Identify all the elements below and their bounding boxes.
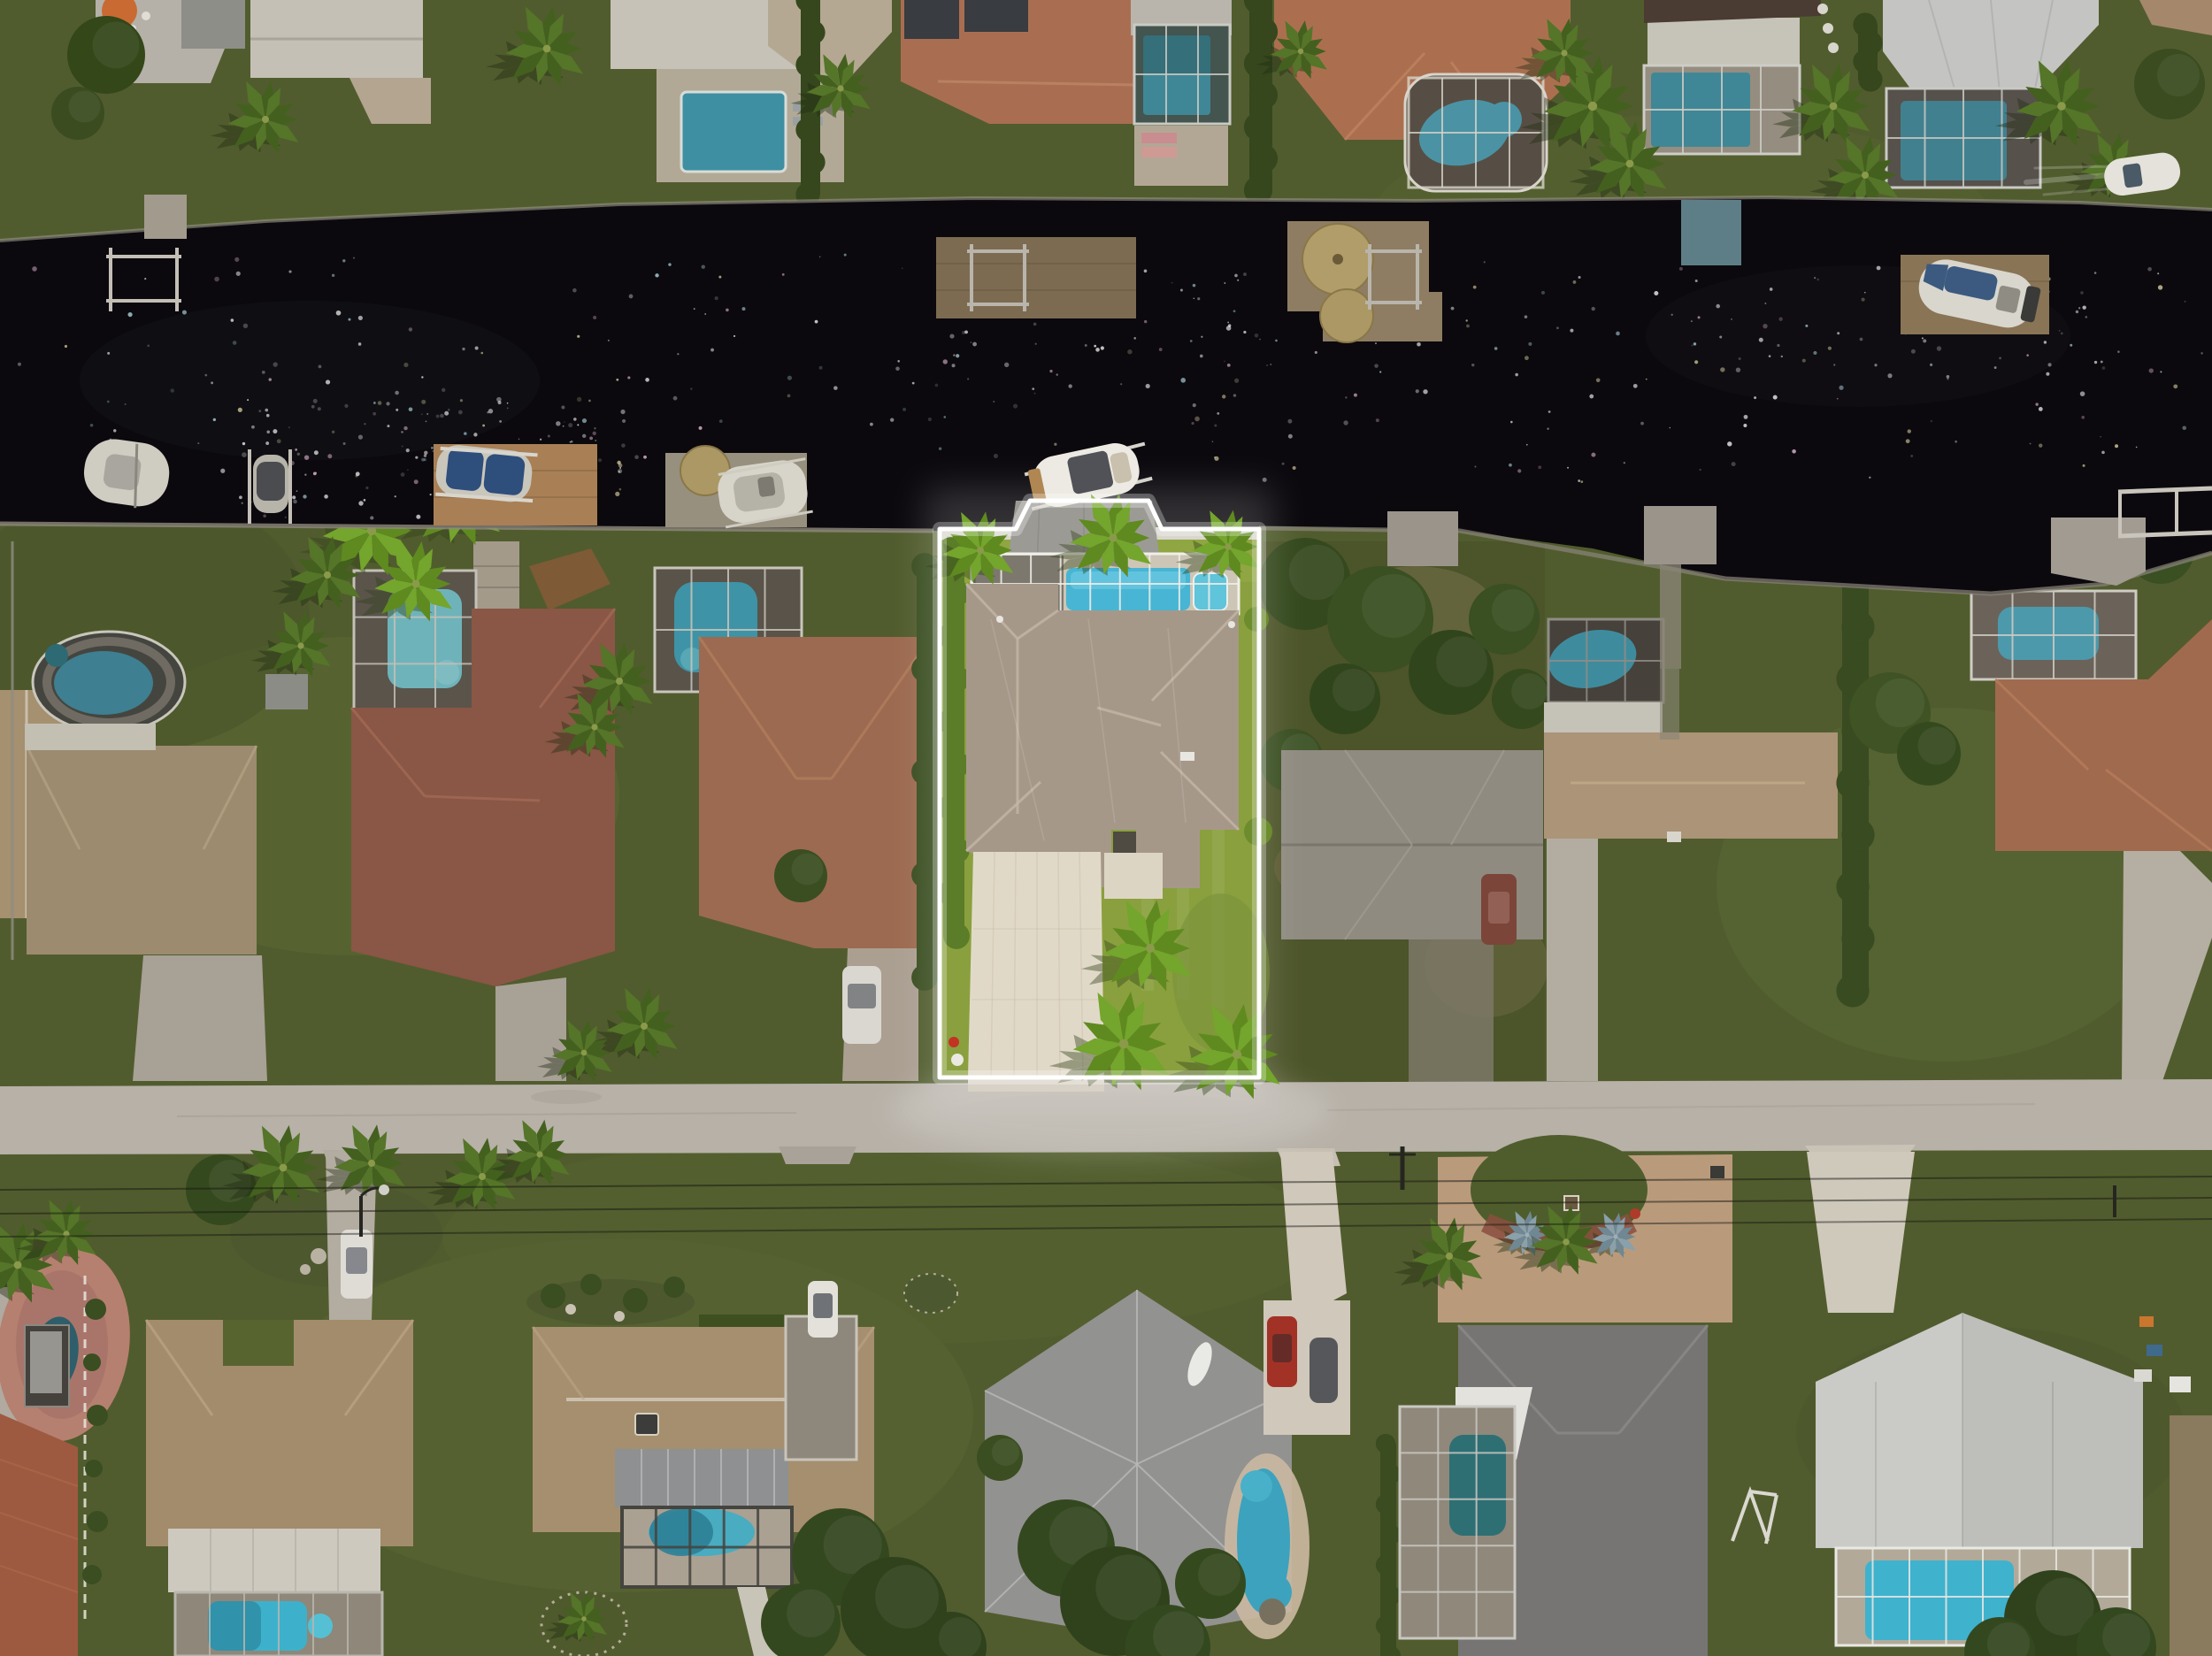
sparkle <box>314 450 319 455</box>
sparkle <box>1839 386 1843 390</box>
sparkle <box>577 397 581 402</box>
palm-crown <box>1626 160 1634 168</box>
hedge-bush <box>1381 1525 1401 1545</box>
sparkle <box>890 418 894 421</box>
trash-bin <box>1710 1166 1724 1178</box>
sparkle <box>1275 340 1278 342</box>
sparkle <box>285 517 287 518</box>
sparkle <box>1770 287 1773 291</box>
sparkle <box>213 418 216 421</box>
sparkle <box>1931 420 1933 423</box>
sparkle <box>1200 355 1203 358</box>
sparkle <box>458 410 463 415</box>
sparkle <box>1423 389 1427 394</box>
sparkle <box>608 340 610 341</box>
sparkle <box>1033 323 1037 326</box>
pool <box>681 92 786 172</box>
driveway-apron <box>779 1146 856 1164</box>
sparkle <box>952 364 956 367</box>
sparkle <box>1224 361 1225 363</box>
sparkle <box>1471 364 1474 366</box>
sparkle <box>1212 441 1214 442</box>
sparkle <box>127 312 132 317</box>
hedge-bush <box>1249 144 1278 172</box>
sparkle <box>1624 462 1625 464</box>
sparkle <box>540 439 541 441</box>
sparkle <box>2173 384 2177 388</box>
sparkle <box>1035 343 1037 345</box>
sparkle <box>431 447 434 449</box>
sparkle <box>815 320 818 324</box>
sparkle <box>1864 292 1866 294</box>
aerial-photo <box>0 0 2212 1656</box>
stepping-stone <box>951 1054 964 1066</box>
sparkle <box>1816 279 1819 281</box>
sparkle <box>588 400 591 402</box>
sparkle <box>1570 329 1573 333</box>
sparkle <box>1194 298 1195 300</box>
rock <box>300 1264 311 1275</box>
sparkle <box>211 381 213 384</box>
sparkle <box>1266 364 1268 366</box>
sparkle <box>332 431 334 433</box>
sparkle <box>897 360 900 363</box>
sparkle <box>902 408 906 411</box>
sparkle <box>251 425 255 429</box>
sparkle <box>2070 344 2072 347</box>
shrub <box>85 1299 106 1320</box>
sparkle <box>710 349 714 352</box>
sparkle <box>407 469 409 471</box>
sparkle <box>507 402 509 404</box>
sparkle <box>699 426 703 430</box>
sparkle <box>2046 372 2049 376</box>
lounger-pink <box>1141 147 1177 157</box>
palm-crown <box>324 571 331 579</box>
sparkle <box>1573 280 1577 284</box>
tree <box>51 87 104 140</box>
sparkle <box>402 445 403 447</box>
palm-crown <box>412 580 420 588</box>
sparkle <box>415 456 418 459</box>
sparkle <box>1910 455 1913 457</box>
sparkle <box>430 494 432 495</box>
sparkle <box>1120 383 1122 385</box>
sparkle <box>939 448 941 450</box>
pad-path <box>1660 564 1681 669</box>
sparkle <box>690 387 693 390</box>
sparkle <box>1947 375 1950 379</box>
flowers <box>1630 1208 1640 1219</box>
sparkle <box>1743 424 1747 427</box>
sparkle <box>370 516 373 519</box>
sparkle <box>440 414 444 418</box>
sparkle <box>1837 398 1839 400</box>
palm-crown <box>14 1261 22 1269</box>
sparkle <box>2061 332 2063 334</box>
tree <box>1310 663 1380 734</box>
sparkle <box>782 273 785 276</box>
sparkle <box>315 472 317 474</box>
palm-crown <box>837 85 843 91</box>
red-umbrella-table <box>949 1037 959 1047</box>
sparkle <box>733 335 735 337</box>
sparkle <box>582 434 586 438</box>
sparkle <box>1237 280 1239 281</box>
hedge-bush <box>1249 18 1278 46</box>
house-roof-main <box>966 584 1239 892</box>
sparkle <box>1416 389 1419 393</box>
sparkle <box>406 448 410 452</box>
sparkle <box>1731 318 1732 320</box>
rock-waterfall <box>1259 1598 1286 1625</box>
sparkle <box>1908 429 1911 433</box>
sparkle <box>943 359 948 364</box>
sparkle <box>619 467 621 469</box>
sparkle <box>643 456 647 459</box>
sparkle <box>296 490 298 492</box>
sparkle <box>1692 345 1694 347</box>
sparkle <box>1466 319 1468 321</box>
house-white-wing <box>168 1529 380 1592</box>
sparkle <box>645 378 649 382</box>
sparkle <box>214 277 219 282</box>
stepping-stone <box>1828 42 1839 53</box>
sparkle <box>629 295 634 299</box>
sparkle <box>266 430 270 433</box>
sparkle <box>1095 348 1100 352</box>
sparkle <box>972 342 977 347</box>
sparkle <box>1828 347 1832 350</box>
side-paver-pad <box>1104 853 1163 899</box>
hedge-bush <box>943 580 970 607</box>
sparkle <box>421 400 426 404</box>
sparkle <box>1085 344 1087 347</box>
sparkle <box>2080 291 2084 295</box>
sparkle <box>1720 367 1724 372</box>
sparkle <box>1538 465 1541 469</box>
patio-chair <box>142 11 150 20</box>
sparkle <box>518 439 520 441</box>
sparkle <box>319 365 322 369</box>
palm-crown <box>641 1023 648 1030</box>
sparkle <box>568 423 572 427</box>
sparkle <box>432 450 434 452</box>
tree-sheen <box>1917 726 1955 764</box>
sparkle <box>2149 368 2154 372</box>
sparkle <box>598 458 602 462</box>
pool-dark-teal <box>1449 1435 1506 1536</box>
sparkle <box>617 461 620 464</box>
sparkle <box>288 426 290 428</box>
sparkle <box>787 376 792 380</box>
boat-canvas <box>445 448 485 492</box>
sparkle <box>295 448 297 451</box>
tree-sheen <box>93 22 140 69</box>
tree-sheen <box>1876 678 1924 727</box>
sparkle <box>326 379 330 384</box>
road-stain <box>531 1090 602 1104</box>
sparkle <box>1101 346 1104 349</box>
sparkle <box>233 341 237 345</box>
palm-crown <box>297 642 303 648</box>
sparkle <box>2076 310 2078 313</box>
hedge-bush <box>1249 80 1278 109</box>
sparkle <box>571 441 573 443</box>
sparkle <box>1525 315 1528 318</box>
sparkle <box>1869 477 1870 479</box>
sparkle <box>353 257 355 258</box>
house-annex <box>181 0 245 49</box>
sparkle <box>387 425 389 427</box>
sparkle <box>1802 359 1806 363</box>
sparkle <box>482 425 485 427</box>
sparkle <box>1004 363 1009 367</box>
stepping-stone <box>1817 4 1828 14</box>
sparkle <box>1133 337 1136 340</box>
sparkle <box>2081 416 2085 419</box>
sparkle <box>1171 282 1173 284</box>
sparkle <box>90 424 94 427</box>
tree-sheen <box>875 1565 939 1629</box>
sparkle <box>618 469 622 473</box>
rock <box>614 1311 625 1322</box>
spa <box>1194 573 1227 610</box>
sparkle <box>935 384 939 387</box>
pool-cover <box>1143 35 1210 74</box>
roof-vent <box>996 616 1003 623</box>
sparkle <box>18 363 21 366</box>
driveway <box>1547 839 1598 1081</box>
boat-canvas <box>483 453 526 495</box>
sparkle <box>1068 384 1071 387</box>
sparkle <box>2085 316 2088 318</box>
sparkle <box>702 264 705 268</box>
sparkle <box>1694 342 1696 345</box>
sparkle <box>386 402 389 405</box>
sparkle <box>1013 403 1018 408</box>
sparkle <box>1214 424 1217 426</box>
tree <box>977 1435 1023 1481</box>
sparkle <box>563 425 565 427</box>
shrub <box>82 1565 102 1584</box>
sparkle <box>677 353 679 355</box>
sparkle <box>125 403 127 405</box>
car-windshield <box>346 1247 367 1274</box>
street-light-head <box>379 1184 389 1195</box>
solar-panel <box>964 0 1028 32</box>
sparkle <box>1354 394 1357 397</box>
sparkle <box>1159 348 1163 351</box>
sparkle <box>1287 419 1292 424</box>
sparkle <box>971 341 972 343</box>
sparkle <box>403 363 408 367</box>
sparkle <box>1180 378 1186 383</box>
boat-wake <box>2035 166 2111 168</box>
sparkle <box>1591 453 1595 457</box>
sparkle <box>416 515 420 519</box>
sparkle <box>1922 337 1924 339</box>
sparkle <box>1719 336 1722 339</box>
palm-crown <box>977 547 984 554</box>
sparkle <box>1345 396 1347 398</box>
sparkle <box>2200 352 2202 354</box>
sparkle <box>1727 441 1732 446</box>
shrub <box>623 1288 648 1313</box>
palm-crown <box>1225 543 1232 550</box>
sparkle <box>1769 355 1771 357</box>
sparkle <box>336 310 342 316</box>
shrub <box>580 1274 602 1295</box>
dock-steps <box>144 195 187 239</box>
sparkle <box>1194 417 1200 422</box>
sparkle <box>2039 443 2042 447</box>
sparkle <box>356 471 360 476</box>
sparkle <box>292 495 296 499</box>
sparkle <box>436 415 440 418</box>
sparkle <box>1127 349 1132 354</box>
sparkle <box>311 405 315 409</box>
shrub <box>85 1460 103 1477</box>
sparkle <box>2185 301 2186 303</box>
sparkle <box>1911 349 1916 354</box>
sparkle <box>1343 420 1348 425</box>
sparkle <box>719 419 723 423</box>
sparkle <box>358 501 363 505</box>
house-roof <box>1647 18 1800 67</box>
hedge-bush <box>1836 974 1869 1007</box>
sparkle <box>616 379 618 381</box>
sparkle <box>273 429 277 433</box>
sparkle <box>2083 464 2085 467</box>
sparkle <box>2147 267 2152 272</box>
sparkle <box>113 429 116 432</box>
sparkle <box>1541 291 1545 295</box>
hedge-bush <box>1376 1434 1395 1453</box>
sparkle <box>1999 357 2001 360</box>
sparkle <box>2102 366 2106 370</box>
sparkle <box>1923 339 1926 342</box>
sparkle <box>593 432 596 435</box>
sparkle <box>1243 272 1247 276</box>
sparkle <box>475 346 479 349</box>
sparkle <box>1778 318 1782 321</box>
sparkle <box>1528 342 1532 346</box>
sparkle <box>1616 332 1620 336</box>
sparkle <box>364 423 365 425</box>
sparkle <box>1379 371 1381 372</box>
sparkle <box>564 421 565 423</box>
sparkle <box>2094 272 2097 274</box>
hedge <box>1836 558 1874 1007</box>
car-windshield <box>848 984 876 1008</box>
shrub <box>87 1511 108 1532</box>
sparkle <box>220 469 225 473</box>
sparkle <box>365 487 368 489</box>
sparkle <box>1640 422 1644 425</box>
sparkle <box>1567 467 1569 469</box>
hedge-bush <box>1836 766 1869 799</box>
sparkle <box>343 442 346 445</box>
tree <box>1469 584 1540 655</box>
sparkle <box>1937 346 1941 350</box>
tree-sheen <box>1511 673 1548 709</box>
sparkle <box>572 288 577 293</box>
sparkle <box>507 407 509 409</box>
sparkle <box>1193 284 1196 287</box>
house-white-wing <box>25 724 156 750</box>
sparkle <box>147 345 150 348</box>
sparkle <box>2101 361 2103 364</box>
hedge-bush <box>1836 870 1869 903</box>
sparkle <box>1451 307 1455 310</box>
concrete-pad <box>1387 511 1458 566</box>
sparkle <box>182 310 187 315</box>
sparkle <box>1580 480 1583 483</box>
sparkle <box>1197 297 1200 300</box>
sparkle <box>819 366 823 370</box>
sparkle <box>378 401 382 405</box>
sparkle <box>2026 354 2029 356</box>
sparkle <box>1670 427 1671 429</box>
sparkle <box>619 488 622 491</box>
aerial-photo-canvas <box>0 0 2212 1656</box>
sparkle <box>912 382 915 385</box>
sparkle <box>293 500 297 504</box>
sparkle <box>348 318 350 321</box>
sparkle <box>403 426 407 430</box>
garden-circle <box>904 1274 957 1313</box>
hedge-bush <box>1841 610 1874 643</box>
sparkle <box>1375 342 1377 344</box>
sparkle <box>1860 338 1863 341</box>
sparkle <box>364 499 366 502</box>
sparkle <box>243 324 248 328</box>
sparkle <box>1517 469 1521 472</box>
sparkle <box>332 274 334 277</box>
palm-crown <box>1862 172 1869 179</box>
sparkle <box>1906 439 1910 443</box>
sparkle <box>1293 466 1296 470</box>
sparkle <box>239 495 242 499</box>
hedge-bush <box>943 923 970 949</box>
sparkle <box>1466 325 1470 328</box>
sparkle <box>1146 384 1150 388</box>
sparkle <box>1193 403 1196 407</box>
sparkle <box>426 420 427 422</box>
solar-panel <box>904 0 959 39</box>
sparkle <box>1033 393 1035 395</box>
sparkle <box>1596 378 1601 382</box>
sparkle <box>327 454 332 458</box>
tree-sheen <box>1492 589 1534 632</box>
sparkle <box>1144 320 1147 323</box>
sparkle <box>1473 286 1477 289</box>
tree-sheen <box>787 1590 834 1637</box>
roof-skylight <box>1180 752 1194 761</box>
sparkle <box>242 452 247 457</box>
pool-cover <box>208 1601 261 1651</box>
sparkle <box>634 455 639 459</box>
palm-crown <box>536 1151 542 1157</box>
sparkle <box>421 413 423 415</box>
sparkle <box>1695 280 1698 282</box>
palm-crown <box>1146 944 1155 953</box>
sparkle <box>615 492 619 496</box>
yard-item <box>2147 1345 2162 1356</box>
sparkle <box>1833 364 1835 365</box>
sparkle <box>895 366 900 371</box>
